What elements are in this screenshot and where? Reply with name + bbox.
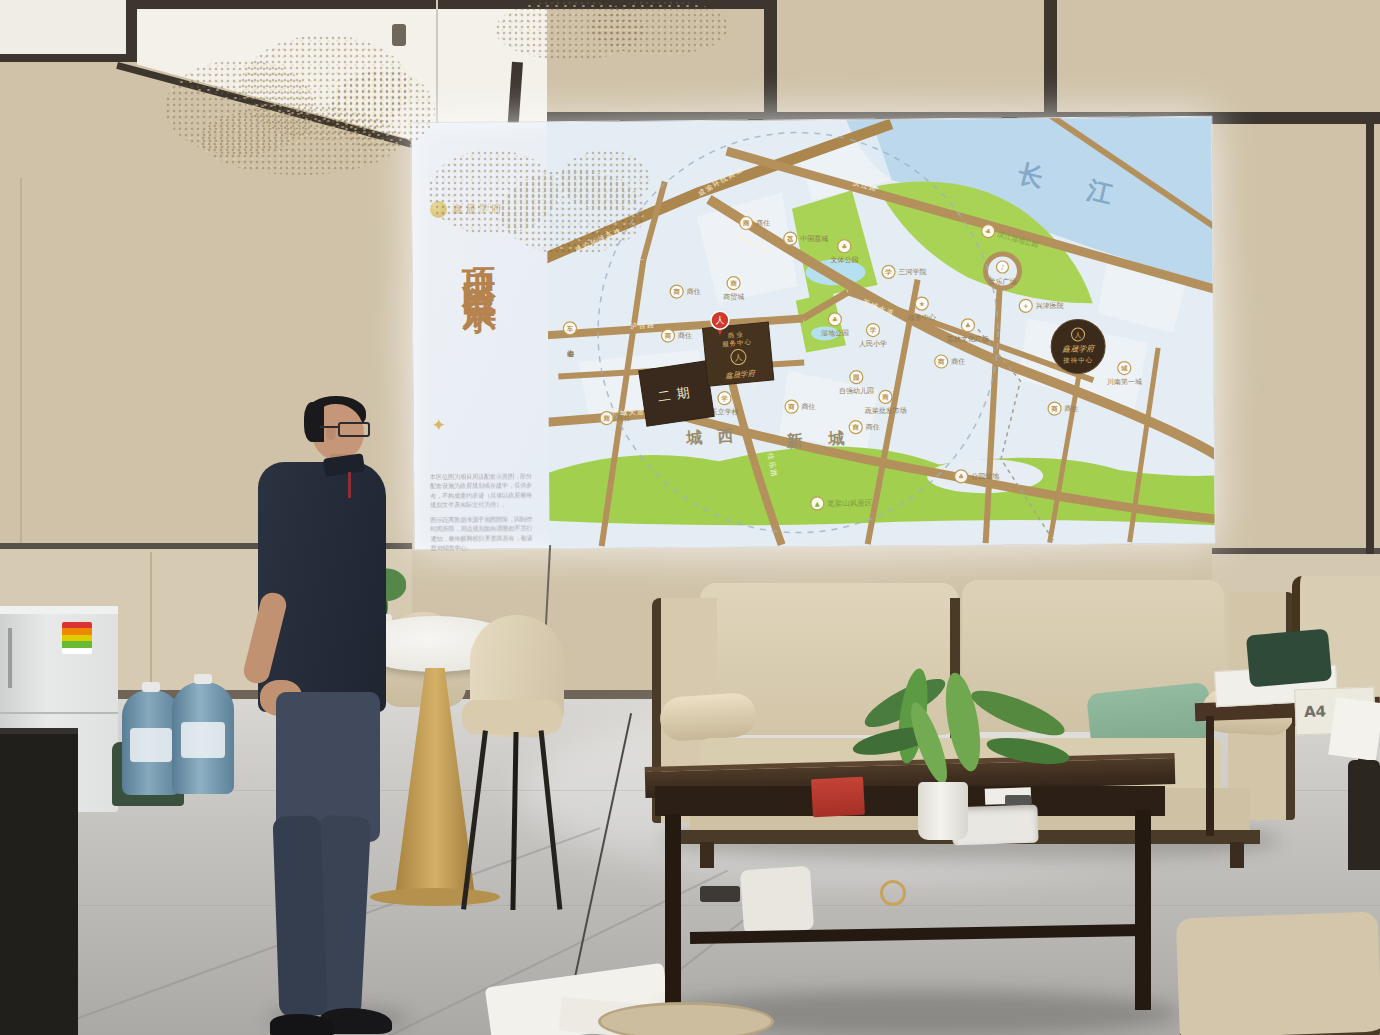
svg-text:商: 商 [664, 332, 672, 340]
svg-text:自强幼儿园: 自强幼儿园 [839, 387, 874, 395]
chandelier-cloud-2b [590, 0, 730, 55]
svg-text:▲: ▲ [815, 500, 820, 508]
sparkle-icon: ✦ [432, 415, 446, 435]
side-table-leg [1206, 716, 1214, 836]
svg-text:中国荔城: 中国荔城 [800, 235, 828, 243]
pin-glyph: 人 [715, 315, 724, 325]
water-bottle-cap-2 [194, 674, 212, 684]
svg-text:鑫晟学府: 鑫晟学府 [1062, 344, 1096, 353]
ottoman [1176, 912, 1380, 1035]
green-folder-bag [1246, 629, 1332, 688]
svg-text:商住: 商住 [950, 358, 965, 366]
man-shoe-back [270, 1014, 334, 1035]
energy-label [62, 622, 92, 654]
svg-text:城: 城 [1120, 365, 1128, 373]
coffee-table-leg [1135, 810, 1151, 1010]
bolster-pillow-left [659, 692, 758, 743]
svg-text:♣: ♣ [965, 322, 971, 330]
dining-chair-right-seat [462, 700, 562, 734]
svg-text:音乐广场: 音乐广场 [989, 278, 1017, 286]
brass-ring-handle [880, 880, 906, 906]
project-block: 商业 服务中心 人 鑫晟学府 [703, 322, 774, 386]
svg-text:兴津医院: 兴津医院 [1036, 302, 1064, 310]
bag-under-table [740, 866, 814, 935]
svg-text:★: ★ [919, 300, 925, 308]
svg-text:荔: 荔 [786, 235, 794, 243]
svg-text:天立学校: 天立学校 [711, 408, 739, 416]
svg-text:学: 学 [721, 395, 728, 403]
svg-text:商: 商 [937, 358, 945, 366]
man-ear [326, 426, 336, 440]
svg-text:♪: ♪ [1000, 263, 1004, 271]
a4-box-label: A4 [1304, 702, 1327, 721]
dark-side-object [1348, 760, 1380, 870]
man-hair-back [304, 402, 324, 442]
svg-text:商住: 商住 [616, 414, 631, 422]
svg-text:商: 商 [602, 415, 610, 423]
svg-text:蔬菜批发市场: 蔬菜批发市场 [865, 406, 907, 415]
svg-text:学: 学 [870, 326, 877, 334]
hanging-paper [1328, 697, 1380, 761]
ceiling-fitting [392, 24, 406, 46]
svg-text:笔架山风景区: 笔架山风景区 [827, 499, 873, 508]
svg-text:人民小学: 人民小学 [859, 340, 887, 348]
sofa-leg [1230, 842, 1244, 868]
svg-text:商住: 商住 [865, 423, 880, 431]
chandelier-cloud-3c [560, 150, 650, 210]
svg-text:商: 商 [742, 219, 750, 227]
svg-text:商: 商 [881, 393, 889, 401]
wall-panel-seam-left [20, 178, 22, 543]
coffee-table-leg [665, 814, 681, 1019]
fine-print-paragraph-2: 图示距离数据来源于地图测算，因制作时间所限，周边规划如有调整恕不另行通知，最终解… [430, 514, 532, 552]
fine-print: 本区位图为项目周边配套示意图，部分配套设施为政府规划或在建中，仅供参考，不构成要… [430, 471, 533, 558]
svg-text:川南第一城: 川南第一城 [1107, 378, 1142, 386]
svg-text:商贸城: 商贸城 [722, 293, 744, 301]
water-bottle-2-label [181, 722, 225, 758]
man-glasses-arm [320, 426, 340, 428]
svg-text:商住: 商住 [686, 288, 701, 296]
svg-text:商: 商 [729, 280, 737, 288]
svg-text:商: 商 [672, 288, 680, 296]
black-cabinet [0, 728, 78, 1035]
water-bottle-cap-1 [142, 682, 160, 692]
fine-print-paragraph-1: 本区位图为项目周边配套示意图，部分配套设施为政府规划或在建中，仅供参考，不构成要… [430, 471, 532, 509]
fridge-door-seam [0, 712, 118, 714]
svg-text:政务中心: 政务中心 [907, 314, 936, 322]
standing-man [250, 396, 400, 1035]
svg-text:商: 商 [851, 424, 859, 432]
svg-text:♣: ♣ [832, 316, 838, 324]
svg-text:三河学院: 三河学院 [898, 268, 926, 276]
svg-text:商住: 商住 [677, 332, 692, 340]
svg-text:园: 园 [853, 374, 860, 382]
page-title: 项目区位展示 [456, 240, 502, 282]
svg-text:公园绿地: 公园绿地 [971, 473, 999, 481]
district-label-west: 城西 [685, 425, 749, 448]
fridge-handle [8, 628, 12, 688]
showroom-photo: { "screen": { "logo_text": "鑫晟学府", "titl… [0, 0, 1380, 1035]
svg-text:♣: ♣ [841, 243, 847, 251]
water-bottle-1-label [130, 728, 172, 762]
svg-text:湿地公园: 湿地公园 [821, 329, 849, 337]
ceiling-beam-vertical-left [126, 0, 137, 62]
svg-text:商住: 商住 [1064, 405, 1079, 413]
phase2-block: 二期 [639, 361, 714, 426]
tile-seam [0, 905, 1380, 906]
svg-text:♣: ♣ [958, 473, 964, 481]
remote-under-table [700, 886, 740, 902]
svg-text:城西: 城西 [685, 425, 749, 448]
plant-pot [918, 782, 968, 840]
chandelier-cloud-1d [200, 105, 400, 175]
wood-stool-edge [598, 1002, 774, 1035]
coffee-table-apron [655, 786, 1165, 816]
svg-text:商住: 商住 [755, 219, 770, 227]
ceiling-corner-panel [0, 0, 126, 54]
svg-text:荔枝文化广场: 荔枝文化广场 [946, 334, 989, 343]
svg-text:商: 商 [1050, 405, 1058, 413]
red-brochures [811, 777, 865, 818]
svg-text:商住: 商住 [801, 403, 816, 411]
fridge-top-edge [0, 606, 118, 614]
reception-badge: 人 鑫晟学府 接待中心 [1051, 319, 1105, 373]
reception-logo-glyph: 人 [1074, 331, 1081, 339]
ceiling-beam-corner [0, 54, 130, 62]
svg-text:商: 商 [787, 403, 795, 411]
svg-text:车: 车 [566, 325, 574, 333]
project-logo-glyph: 人 [733, 353, 743, 363]
wall-trim-right-edge [1366, 118, 1374, 554]
man-polo-shirt [258, 462, 386, 712]
tray-item [1005, 795, 1031, 805]
sofa-leg [700, 842, 714, 868]
svg-text:文体公园: 文体公园 [830, 255, 858, 264]
svg-text:学: 学 [885, 268, 892, 276]
svg-text:+: + [1023, 302, 1029, 310]
svg-text:接待中心: 接待中心 [1063, 356, 1093, 364]
man-placket-stripe [348, 472, 351, 498]
road-label-luhe: 泸合路 [630, 321, 656, 331]
man-glasses [338, 422, 370, 437]
wainscot-seam-1 [150, 552, 152, 698]
man-leg-back [273, 815, 328, 1017]
